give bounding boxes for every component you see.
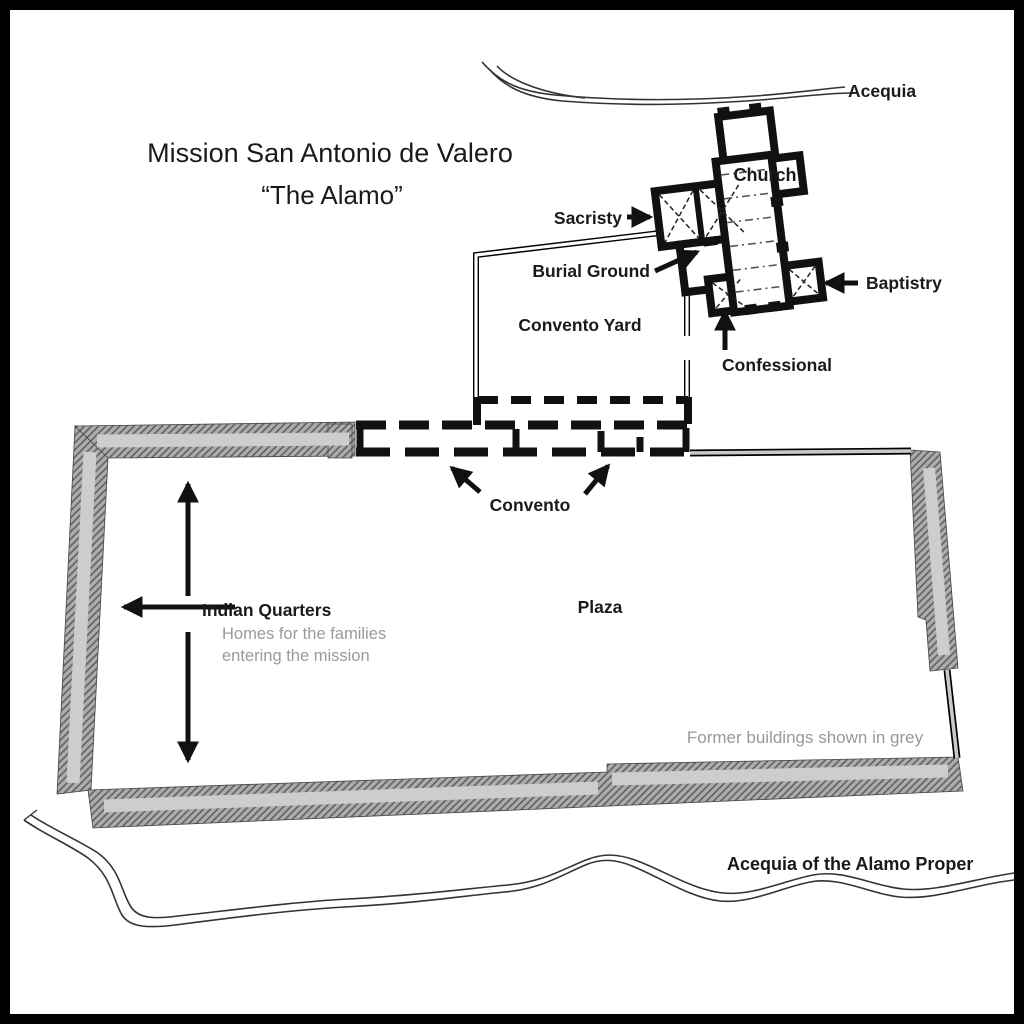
map-subtitle: “The Alamo”: [261, 180, 403, 210]
church-floorplan: [646, 98, 824, 324]
indian-quarters-desc-line1: Homes for the families: [222, 625, 386, 643]
acequia-north-stream: [482, 62, 851, 104]
confessional-label: Confessional: [722, 355, 832, 375]
convento-building: [356, 397, 694, 452]
plaza-label: Plaza: [578, 597, 623, 617]
indian-quarters-desc-line2: entering the mission: [222, 647, 370, 665]
alamo-site-map: Mission San Antonio de Valero “The Alamo…: [0, 0, 1024, 1024]
sacristy-label: Sacristy: [554, 208, 622, 228]
acequia-south-label: Acequia of the Alamo Proper: [727, 854, 973, 874]
convento-arrow-right-icon: [585, 466, 608, 494]
plaza-former-walls: [57, 422, 963, 828]
baptistry-label: Baptistry: [866, 273, 942, 293]
convento-yard-label: Convento Yard: [518, 315, 641, 335]
burial-ground-label: Burial Ground: [532, 261, 650, 281]
convento-label: Convento: [490, 495, 571, 515]
acequia-north-label: Acequia: [848, 81, 916, 101]
indian-quarters-label: Indian Quarters: [202, 600, 332, 620]
convento-arrow-left-icon: [452, 468, 480, 492]
map-canvas: Mission San Antonio de Valero “The Alamo…: [0, 0, 1024, 1024]
legend-note: Former buildings shown in grey: [687, 728, 924, 747]
map-title: Mission San Antonio de Valero: [147, 138, 513, 168]
church-label: Church: [734, 165, 797, 185]
